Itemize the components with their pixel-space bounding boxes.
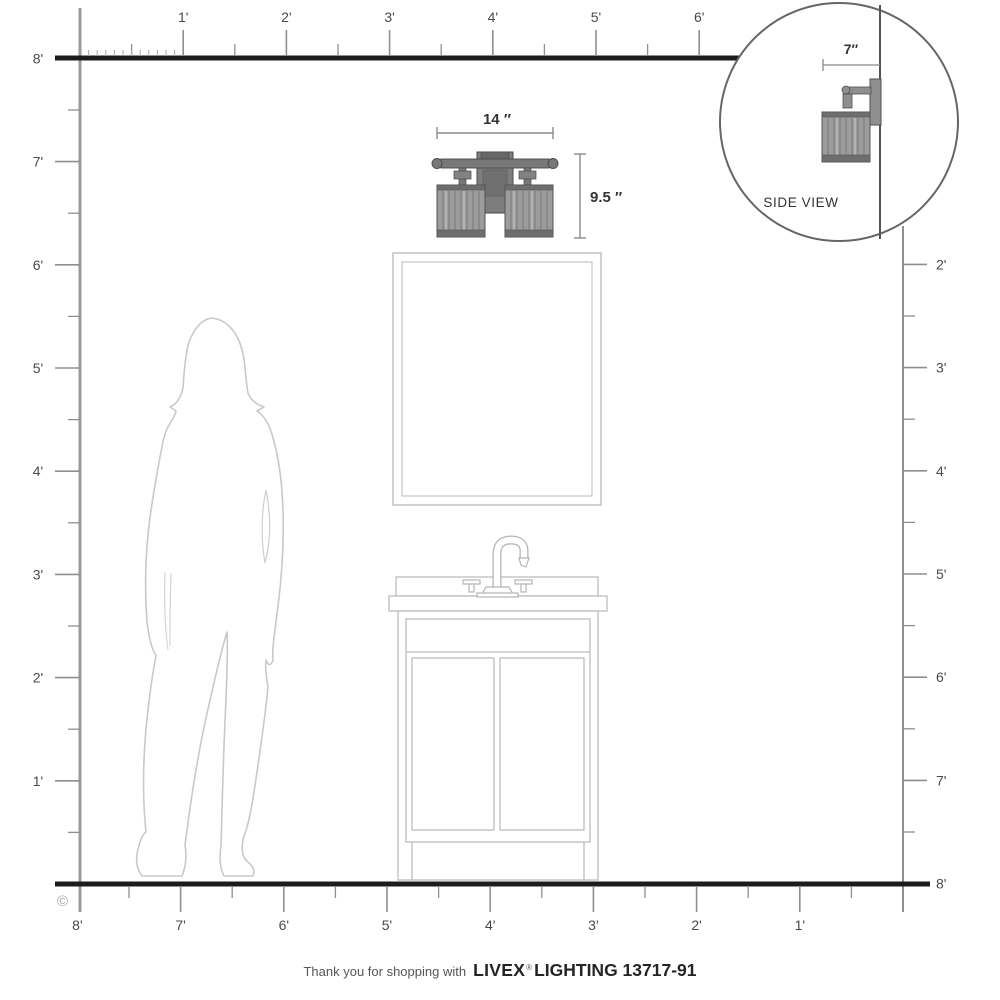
top-ruler-label: 2' xyxy=(281,9,291,25)
diagram-canvas: 1'2'3'4'5'6'8'7'6'5'4'3'2'1'2'3'4'5'6'7'… xyxy=(0,0,1000,950)
right-ruler-label: 3' xyxy=(936,360,946,376)
silhouette-outline xyxy=(137,318,284,876)
left-ruler-label: 8' xyxy=(33,50,43,66)
side-view-label: SIDE VIEW xyxy=(763,195,838,210)
fixture-finial-right xyxy=(548,159,558,169)
fixture-depth-label: 7″ xyxy=(844,41,859,57)
top-ruler-label: 6' xyxy=(694,9,704,25)
left-ruler-label: 1' xyxy=(33,773,43,789)
left-ruler-label: 6' xyxy=(33,257,43,273)
registered-trademark-icon: ® xyxy=(526,963,532,972)
bottom-ruler-label: 1' xyxy=(795,917,805,933)
mirror-inner-frame xyxy=(402,262,592,496)
right-ruler-label: 8' xyxy=(936,876,946,892)
sideview-stem xyxy=(843,94,852,108)
top-ruler-label: 3' xyxy=(384,9,394,25)
bottom-ruler-label: 7' xyxy=(175,917,185,933)
footer-prefix: Thank you for shopping with xyxy=(303,964,466,979)
faucet-handle-left-stem xyxy=(469,584,474,592)
fixture-backplate-inset xyxy=(483,170,507,196)
left-ruler-label: 2' xyxy=(33,670,43,686)
dimension-diagram-page: 1'2'3'4'5'6'8'7'6'5'4'3'2'1'2'3'4'5'6'7'… xyxy=(0,0,1000,1000)
top-ruler-label: 5' xyxy=(591,9,601,25)
left-ruler-label: 3' xyxy=(33,566,43,582)
fixture-width-label: 14 ″ xyxy=(483,111,511,128)
faucet xyxy=(463,540,532,597)
light-fixture-front-view xyxy=(432,152,558,237)
human-silhouette xyxy=(137,318,284,876)
sideview-wall-bracket xyxy=(870,79,881,125)
top-ruler-label: 4' xyxy=(488,9,498,25)
bottom-ruler-label: 4' xyxy=(485,917,495,933)
right-ruler-label: 5' xyxy=(936,566,946,582)
faucet-base-plate xyxy=(477,593,518,597)
faucet-spout-tip xyxy=(519,558,529,567)
fixture-shade-left xyxy=(437,185,485,237)
bottom-ruler-label: 5' xyxy=(382,917,392,933)
fixture-backplate-cap xyxy=(481,152,509,159)
fixture-stem-cap-right xyxy=(519,171,536,179)
side-view-inset: 7″ SIDE VIEW xyxy=(720,3,958,241)
fixture-width-dimension xyxy=(437,127,553,139)
vanity-door-left xyxy=(412,658,494,830)
sideview-shade xyxy=(822,112,870,162)
right-ruler-label: 2' xyxy=(936,256,946,272)
fixture-height-dimension xyxy=(574,154,586,238)
right-ruler-label: 6' xyxy=(936,669,946,685)
footer-brand: LIVEX xyxy=(473,960,525,980)
fixture-finial-left xyxy=(432,159,442,169)
left-ruler-label: 7' xyxy=(33,154,43,170)
copyright-icon: © xyxy=(57,893,68,910)
right-ruler-label: 4' xyxy=(936,463,946,479)
top-ruler-label: 1' xyxy=(178,9,188,25)
bottom-ruler-label: 2' xyxy=(691,917,701,933)
sideview-elbow xyxy=(842,86,850,94)
bottom-ruler-label: 6' xyxy=(279,917,289,933)
fixture-bar xyxy=(441,159,549,168)
right-ruler-label: 7' xyxy=(936,772,946,788)
left-ruler-label: 4' xyxy=(33,463,43,479)
fixture-stem-cap-left xyxy=(454,171,471,179)
footer-caption: Thank you for shopping withLIVEX®LIGHTIN… xyxy=(0,960,1000,981)
fixture-shade-right xyxy=(505,185,553,237)
bottom-ruler-label: 3' xyxy=(588,917,598,933)
footer-model-number: LIGHTING 13717-91 xyxy=(534,960,696,980)
vanity-door-right xyxy=(500,658,584,830)
left-ruler-label: 5' xyxy=(33,360,43,376)
vanity-countertop xyxy=(389,596,607,611)
bottom-ruler-label: 8' xyxy=(72,917,82,933)
faucet-handle-right-stem xyxy=(521,584,526,592)
vanity-mirror xyxy=(393,253,601,505)
vanity-cabinet xyxy=(389,577,607,880)
fixture-height-label: 9.5 ″ xyxy=(590,189,622,206)
